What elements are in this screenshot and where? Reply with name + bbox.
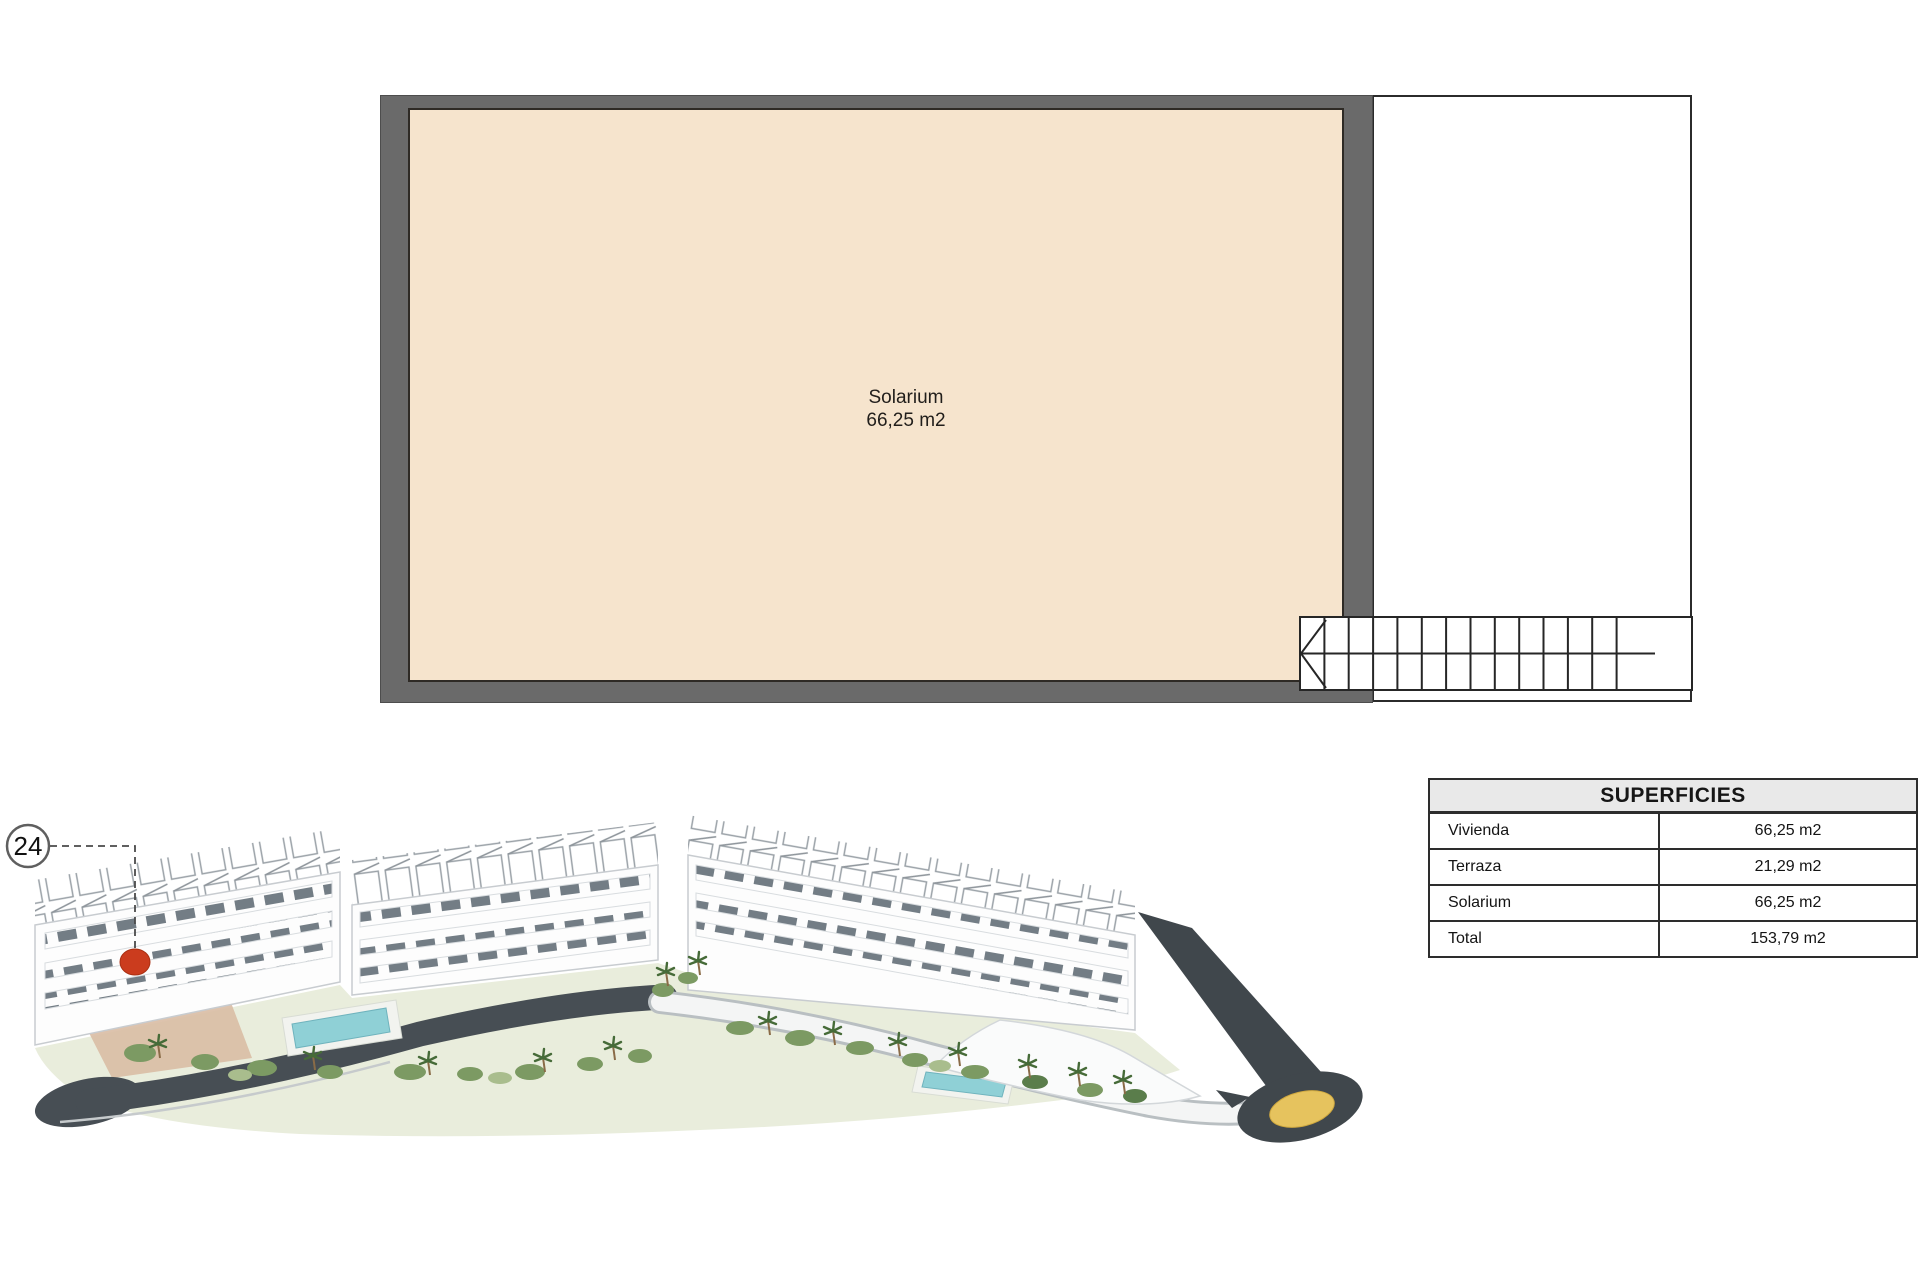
plan-sheet: Solarium 66,25 m2 [0,0,1920,1280]
room-area: 66,25 m2 [756,409,1056,432]
room-label: Solarium 66,25 m2 [756,386,1056,432]
row-value: 66,25 m2 [1660,814,1916,848]
row-value: 21,29 m2 [1660,850,1916,884]
row-value: 66,25 m2 [1660,886,1916,920]
table-row-total: Total 153,79 m2 [1430,922,1916,956]
staircase-lines [1300,617,1692,690]
table-row-solarium: Solarium 66,25 m2 [1430,886,1916,922]
row-label: Total [1430,922,1660,956]
surfaces-table-title: SUPERFICIES [1430,780,1916,814]
site-render-illustration: 24 [0,810,1400,1190]
unit-number: 24 [14,831,43,861]
unit-callout-badge: 24 [7,825,49,867]
row-label: Terraza [1430,850,1660,884]
row-value: 153,79 m2 [1660,922,1916,956]
staircase-drawing [1290,607,1700,707]
unit-24-marker [120,949,150,975]
roundabout [1230,1059,1370,1154]
row-label: Vivienda [1430,814,1660,848]
surfaces-table: SUPERFICIES Vivienda 66,25 m2 Terraza 21… [1428,778,1918,958]
table-row-terraza: Terraza 21,29 m2 [1430,850,1916,886]
room-name: Solarium [756,386,1056,409]
row-label: Solarium [1430,886,1660,920]
table-row-vivienda: Vivienda 66,25 m2 [1430,814,1916,850]
